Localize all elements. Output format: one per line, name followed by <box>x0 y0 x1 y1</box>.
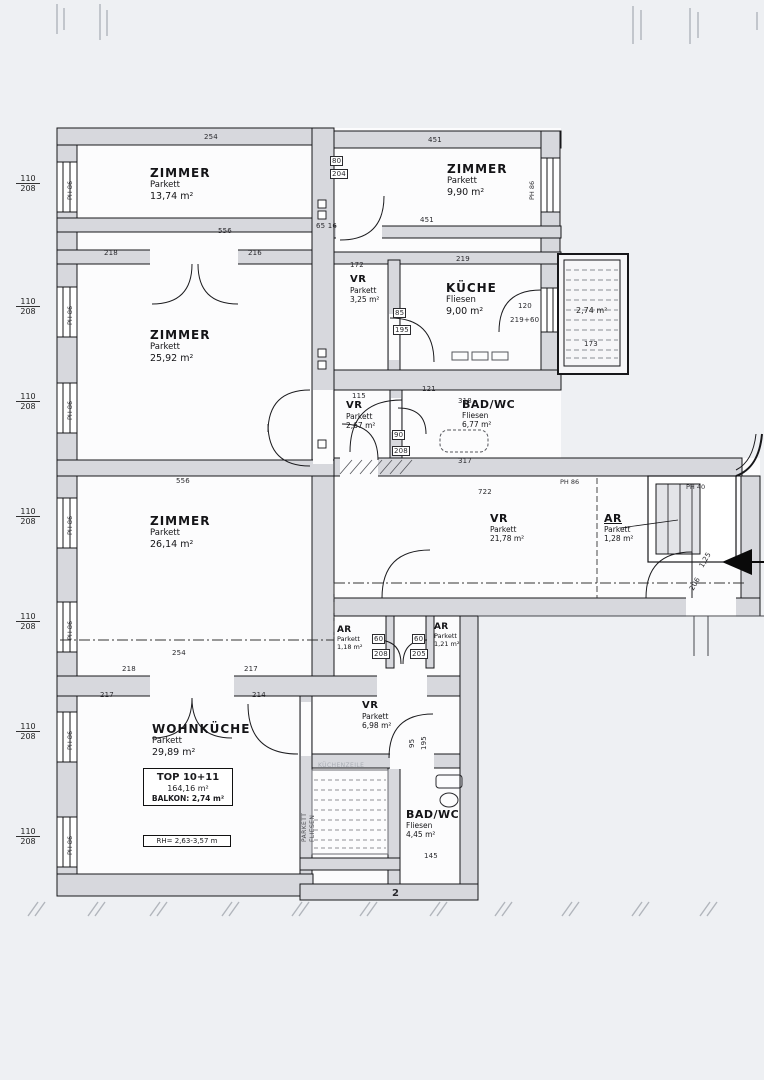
dimension-label: 217 <box>244 665 258 673</box>
entry-parapet-label: PH 40 <box>686 483 705 491</box>
room-label-zimmer-4: ZIMMER Parkett 9,90 m² <box>447 162 508 198</box>
dimension-label: 217 <box>100 691 114 699</box>
parapet-label: PH 86 <box>560 478 579 486</box>
door-size-label: 205 <box>410 649 428 659</box>
dimension-label: 121 <box>422 385 436 393</box>
room-label-ar-2: AR Parkett 1,21 m² <box>434 622 459 648</box>
exterior-stubs <box>478 616 764 656</box>
dimension-label: 318 <box>458 397 472 405</box>
dimension-label: 219+60 <box>510 316 539 324</box>
dimension-label: 218 <box>122 665 136 673</box>
room-label-zimmer-1: ZIMMER Parkett 13,74 m² <box>150 166 211 202</box>
dimension-label: 219 <box>456 255 470 263</box>
door-size-label: 208 <box>372 649 390 659</box>
window-size-label: 110208 <box>16 392 40 411</box>
window-size-label: 110208 <box>16 507 40 526</box>
dimension-label: 317 <box>458 457 472 465</box>
dimension-label: 556 <box>218 227 232 235</box>
room-label-kueche: KÜCHE Fliesen 9,00 m² <box>446 281 497 317</box>
parapet-label: PH 86 <box>66 401 74 420</box>
unit-info-box: TOP 10+11 164,16 m² BALKON: 2,74 m² <box>143 768 233 806</box>
door-size-label: 80 <box>330 156 343 166</box>
dimension-label: 65 16 <box>316 222 337 230</box>
parapet-label: PH 86 <box>528 181 536 200</box>
door-size-label: 60 <box>372 634 385 644</box>
dimension-label: 556 <box>176 477 190 485</box>
dimension-label: 214 <box>252 691 266 699</box>
door-size-label: 195 <box>420 736 428 750</box>
window-size-label: 110208 <box>16 297 40 316</box>
room-label-bad-2: BAD/WC Fliesen 4,45 m² <box>406 808 459 839</box>
balcony-width-dim: 173 <box>584 340 598 348</box>
room-label-vr-2: VR Parkett 2,67 m² <box>346 400 375 430</box>
parapet-label: PH 86 <box>66 621 74 640</box>
scan-marks-bottom <box>28 902 717 916</box>
room-label-ar-3: AR Parkett 1,28 m² <box>604 512 633 543</box>
dimension-label: 218 <box>104 249 118 257</box>
door-size-label: 204 <box>330 169 348 179</box>
dimension-label: 172 <box>350 261 364 269</box>
door-size-label: 90 <box>392 430 405 440</box>
parapet-label: PH 86 <box>66 516 74 535</box>
kitchen-line-note: KÜCHENZEILE <box>318 762 364 769</box>
room-label-vr-4: VR Parkett 6,98 m² <box>362 700 391 730</box>
room-label-ar-1: AR Parkett 1,18 m² <box>337 625 362 651</box>
dimension-label: 120 <box>518 302 532 310</box>
floor-split-note-b: FLIESEN <box>309 815 316 842</box>
dimension-label: 451 <box>428 136 442 144</box>
room-label-zimmer-3: ZIMMER Parkett 26,14 m² <box>150 514 211 550</box>
room-label-wohnkueche: WOHNKÜCHE Parkett 29,89 m² <box>152 722 250 758</box>
room-label-vr-1: VR Parkett 3,25 m² <box>350 274 379 304</box>
dimension-label: 254 <box>172 649 186 657</box>
door-size-label: 195 <box>393 325 411 335</box>
floor-plan-drawing <box>0 0 764 1080</box>
parapet-label: PH 86 <box>66 306 74 325</box>
dimension-label: 216 <box>248 249 262 257</box>
window-size-label: 110208 <box>16 612 40 631</box>
parapet-label: PH 86 <box>66 181 74 200</box>
room-label-zimmer-2: ZIMMER Parkett 25,92 m² <box>150 328 211 364</box>
door-size-label: 208 <box>392 446 410 456</box>
window-size-label: 110208 <box>16 827 40 846</box>
scan-marks-top <box>57 4 757 44</box>
floor-plan-scan: ZIMMER Parkett 13,74 m² ZIMMER Parkett 9… <box>0 0 764 1080</box>
window-right-top <box>541 158 560 212</box>
parapet-label: PH 86 <box>66 836 74 855</box>
room-label-vr-3: VR Parkett 21,78 m² <box>490 512 524 543</box>
floor-split-note-a: PARKETT <box>301 813 308 842</box>
dimension-label: 722 <box>478 488 492 496</box>
dimension-label: 2 <box>392 888 399 899</box>
dimension-label: 254 <box>204 133 218 141</box>
dimension-label: 451 <box>420 216 434 224</box>
door-size-label: 95 <box>408 739 416 748</box>
balcony-area-label: 2,74 m² <box>576 306 607 315</box>
room-height-box: RH= 2,63-3,57 m <box>143 835 231 847</box>
door-size-label: 85 <box>393 308 406 318</box>
dimension-label: 115 <box>352 392 366 400</box>
window-size-label: 110208 <box>16 174 40 193</box>
door-size-label: 60 <box>412 634 425 644</box>
dimension-label: 145 <box>424 852 438 860</box>
parapet-label: PH 86 <box>66 731 74 750</box>
window-size-label: 110208 <box>16 722 40 741</box>
